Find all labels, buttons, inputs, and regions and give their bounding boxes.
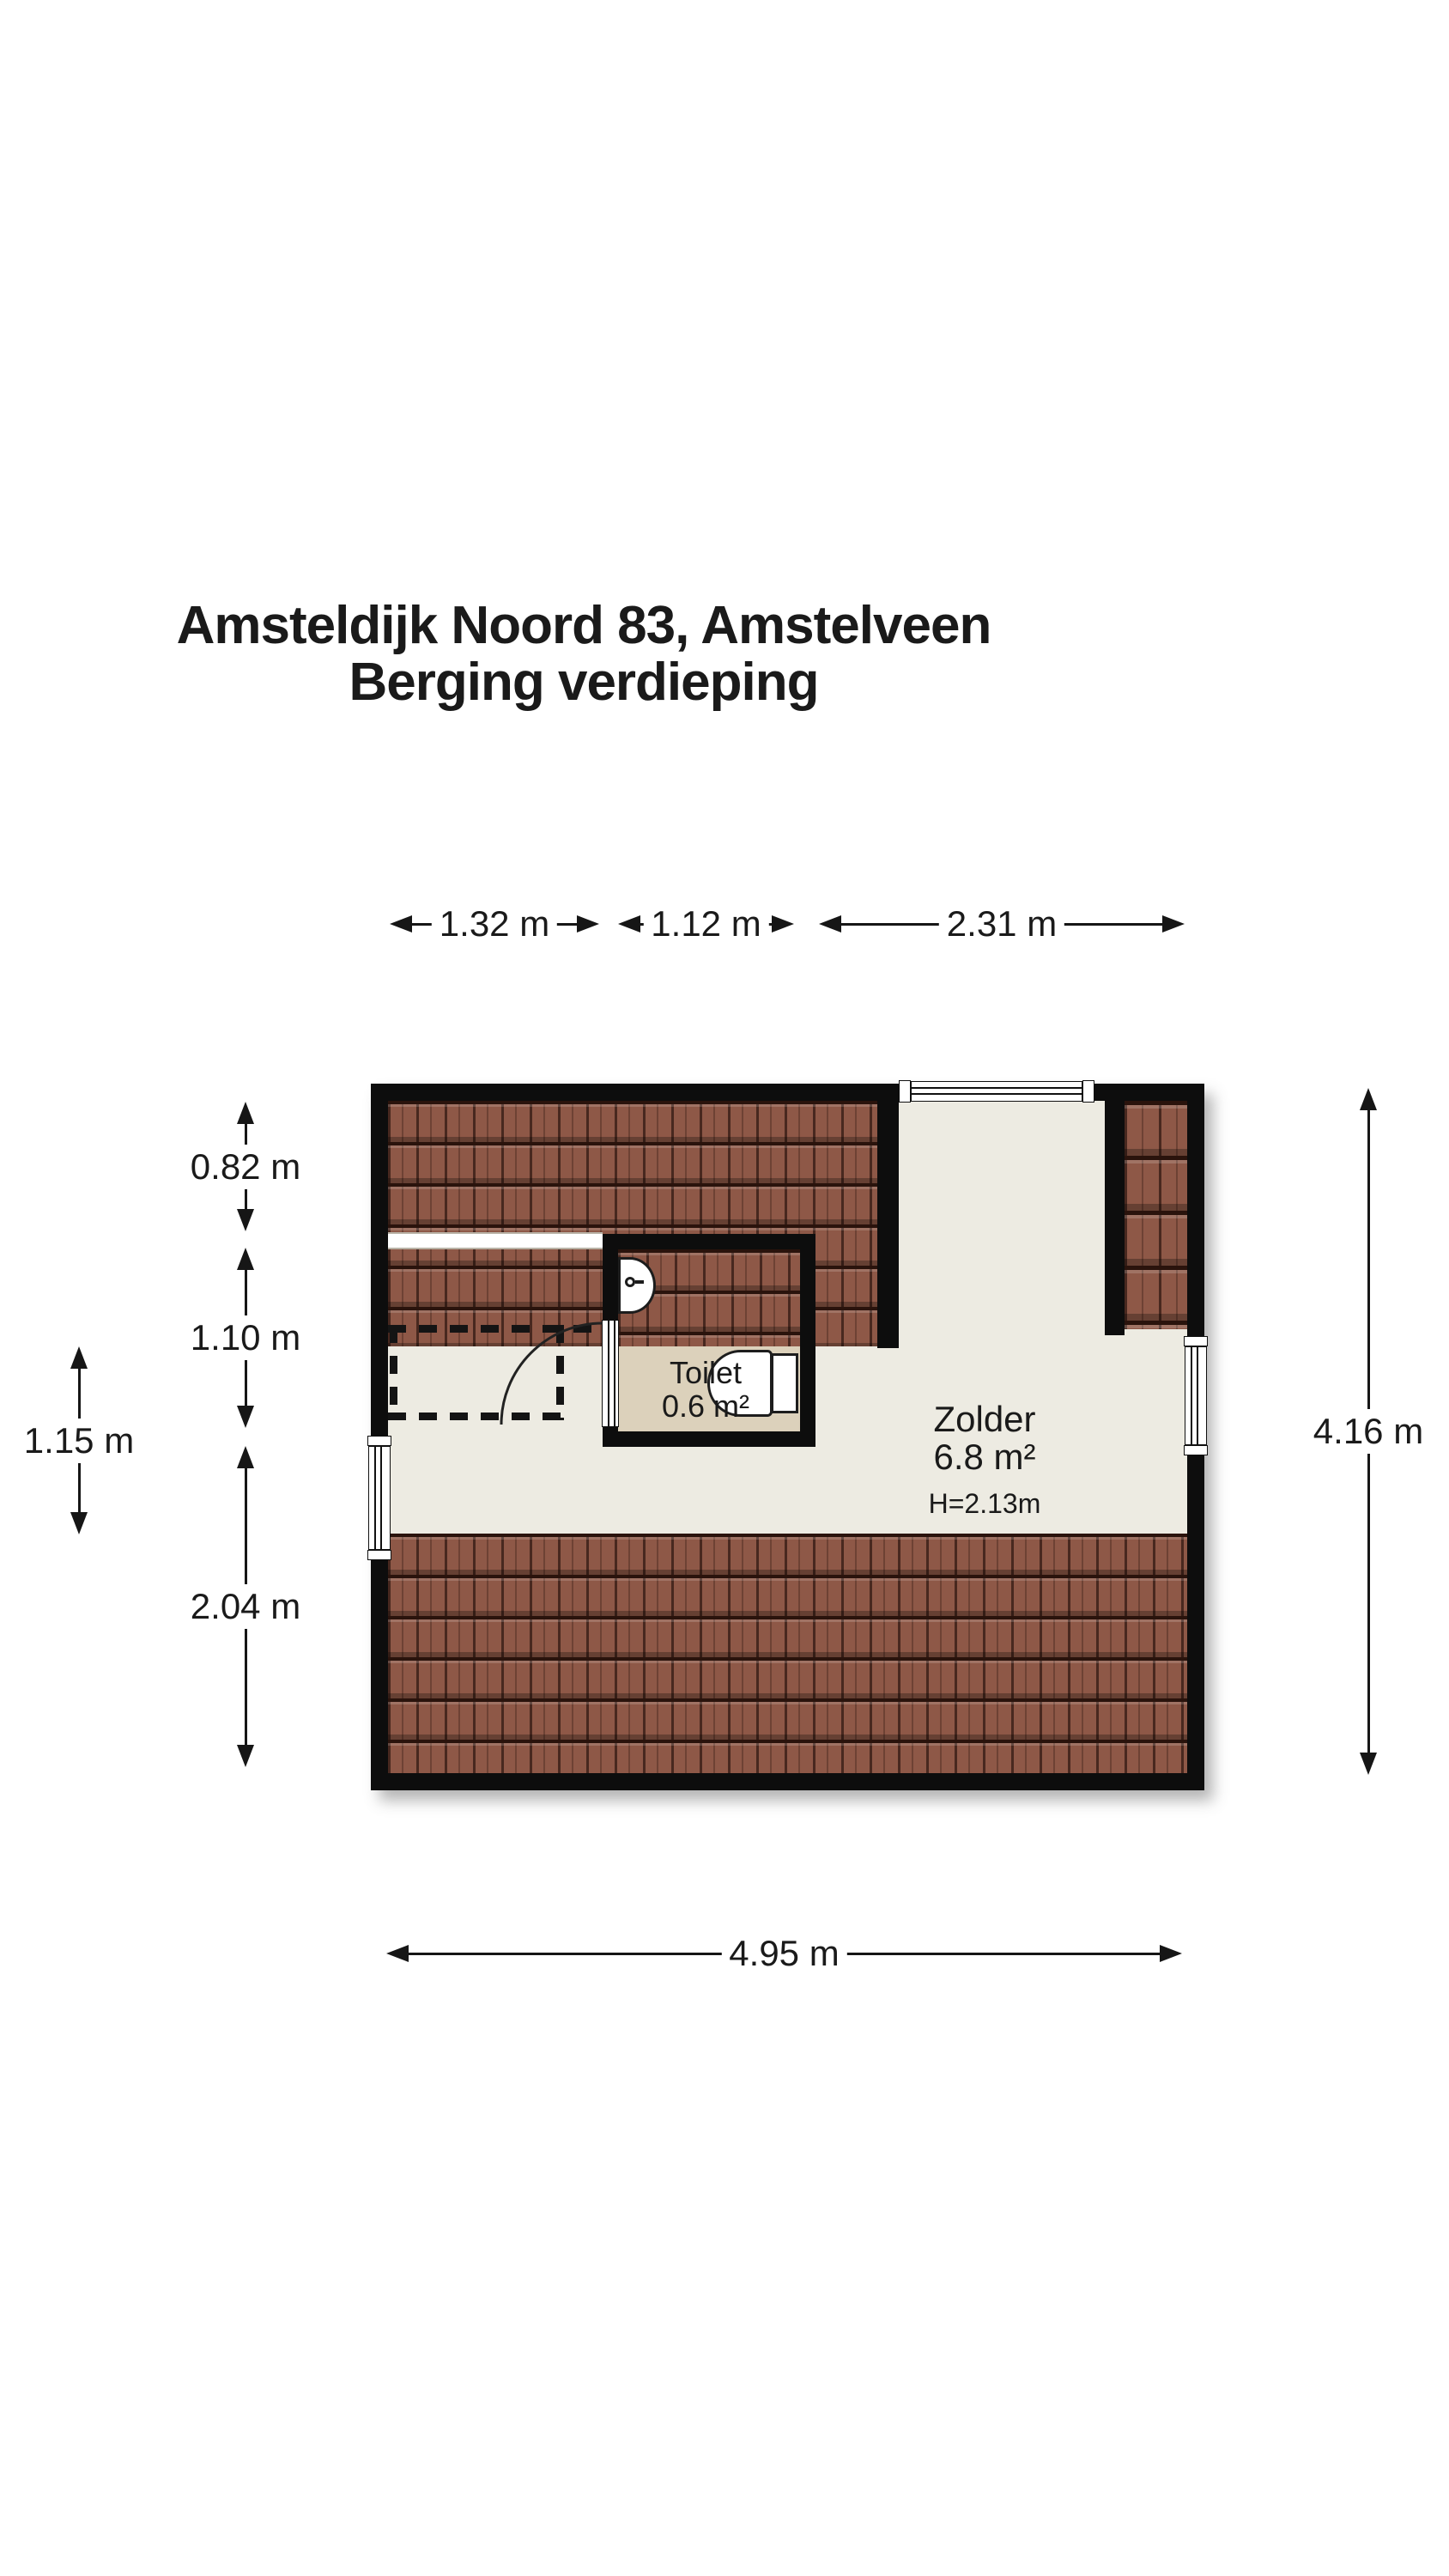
left-wall-window [367,1436,391,1560]
room-name: Toilet [620,1356,791,1389]
dimension-label: 2.04 m [183,1584,308,1629]
arrowhead-right-icon [1160,1945,1182,1962]
dimension-left-2: 1.10 m [230,1248,261,1428]
door-swing-arc-icon [371,1084,1204,1790]
dimension-label: 1.12 m [643,902,768,946]
dimension-bottom: 4.95 m [386,1938,1182,1969]
arrowhead-down-icon [70,1512,88,1534]
right-wall-window [1184,1336,1208,1455]
faucet-spout-icon [635,1280,644,1284]
dimension-top-3: 2.31 m [819,908,1185,939]
arrowhead-down-icon [237,1209,254,1231]
window-cap [367,1436,391,1446]
room-area: 0.6 m² [620,1389,791,1423]
dimension-label: 1.32 m [432,902,557,946]
top-wall-window [899,1080,1094,1103]
toilet-label: Toilet 0.6 m² [620,1356,791,1423]
dimension-left-1: 0.82 m [230,1102,261,1231]
window-cap [367,1550,391,1560]
dimension-label: 0.82 m [183,1145,308,1189]
room-area: 6.8 m² [899,1438,1070,1476]
dimension-label: 4.16 m [1306,1409,1431,1454]
dimension-far-left: 1.15 m [64,1346,94,1534]
window-cap [899,1080,911,1103]
window-cap [1184,1445,1208,1455]
zolder-label: Zolder 6.8 m² H=2.13m [899,1400,1070,1519]
window-glass [368,1446,391,1550]
dimension-top-2: 1.12 m [618,908,794,939]
room-ceiling-height: H=2.13m [899,1488,1070,1519]
dimension-top-1: 1.32 m [390,908,599,939]
window-cap [1082,1080,1094,1103]
window-cap [1184,1336,1208,1346]
dimension-label: 2.31 m [939,902,1064,946]
dimension-label: 1.10 m [183,1315,308,1360]
page-title: Amsteldijk Noord 83, Amstelveen Berging … [69,598,1099,711]
arrowhead-down-icon [237,1406,254,1428]
window-glass [911,1081,1082,1102]
dimension-label: 4.95 m [721,1931,846,1976]
title-floor: Berging verdieping [69,654,1099,711]
floorplan-page: { "title": { "line1": "Amsteldijk Noord … [0,0,1449,2576]
arrowhead-right-icon [772,915,794,933]
room-name: Zolder [899,1400,1070,1438]
dimension-right: 4.16 m [1353,1088,1384,1775]
arrowhead-down-icon [1360,1753,1377,1775]
floorplan: Toilet 0.6 m² Zolder 6.8 m² H=2.13m [371,1084,1204,1790]
arrowhead-down-icon [237,1745,254,1767]
window-glass [1185,1346,1207,1445]
arrowhead-right-icon [577,915,599,933]
arrowhead-right-icon [1162,915,1185,933]
dimension-left-3: 2.04 m [230,1446,261,1767]
title-address: Amsteldijk Noord 83, Amstelveen [69,598,1099,654]
dimension-label: 1.15 m [16,1419,142,1463]
faucet-icon [625,1277,635,1287]
